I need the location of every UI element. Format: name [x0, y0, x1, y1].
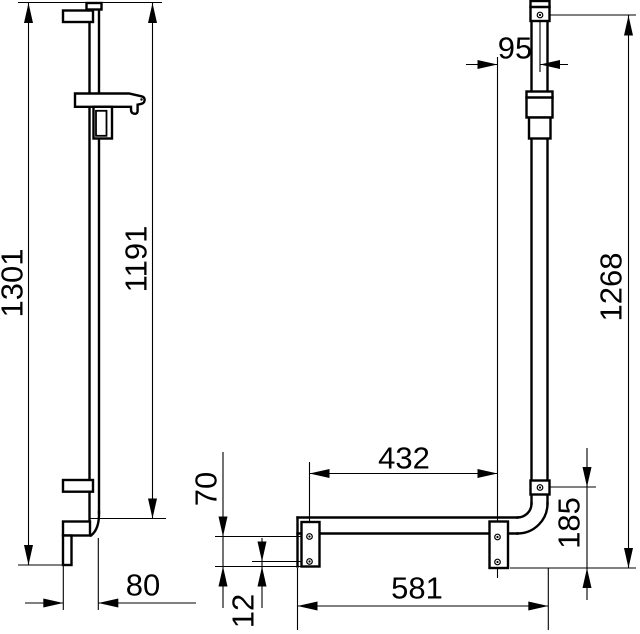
- dim-label-screw-offset: 12: [228, 594, 259, 628]
- shower-hose-connector: [96, 111, 107, 136]
- corner-outer-arc: [518, 504, 548, 534]
- rail-wall-outlet: [63, 522, 90, 536]
- grab-bar-view: [298, 1, 553, 568]
- slider-collar-lower: [529, 118, 551, 139]
- dim-label-bar-horizontal: 581: [391, 573, 443, 604]
- rail-top-cap: [87, 3, 102, 10]
- dim-label-top-offset: 95: [498, 33, 532, 64]
- rail-top-wall-bracket: [63, 11, 93, 23]
- shower-head-detail: [140, 98, 142, 100]
- technical-drawing-canvas: 1301 1191 95 1268 432 70 12 80 581 185: [0, 0, 640, 634]
- dim-label-plate-spacing: 432: [378, 443, 430, 474]
- dim-label-rail-inner: 1191: [121, 226, 152, 293]
- rail-lower-wall-bracket: [63, 480, 93, 492]
- slider-collar-upper: [527, 92, 553, 118]
- dim-label-wall-offset: 80: [126, 570, 160, 601]
- corner-inner-arc: [518, 504, 532, 518]
- rail-wall-plate-edge: [63, 536, 72, 566]
- screw-holes: [307, 12, 543, 565]
- dimension-drawing: [0, 0, 640, 634]
- dim-label-rail-total: 1301: [0, 249, 28, 318]
- dim-label-corner-drop: 185: [554, 497, 585, 549]
- dim-label-bar-vertical: 1268: [596, 253, 627, 322]
- dim-label-plate-drop: 70: [191, 472, 222, 506]
- rail-elbow-curve: [91, 512, 99, 536]
